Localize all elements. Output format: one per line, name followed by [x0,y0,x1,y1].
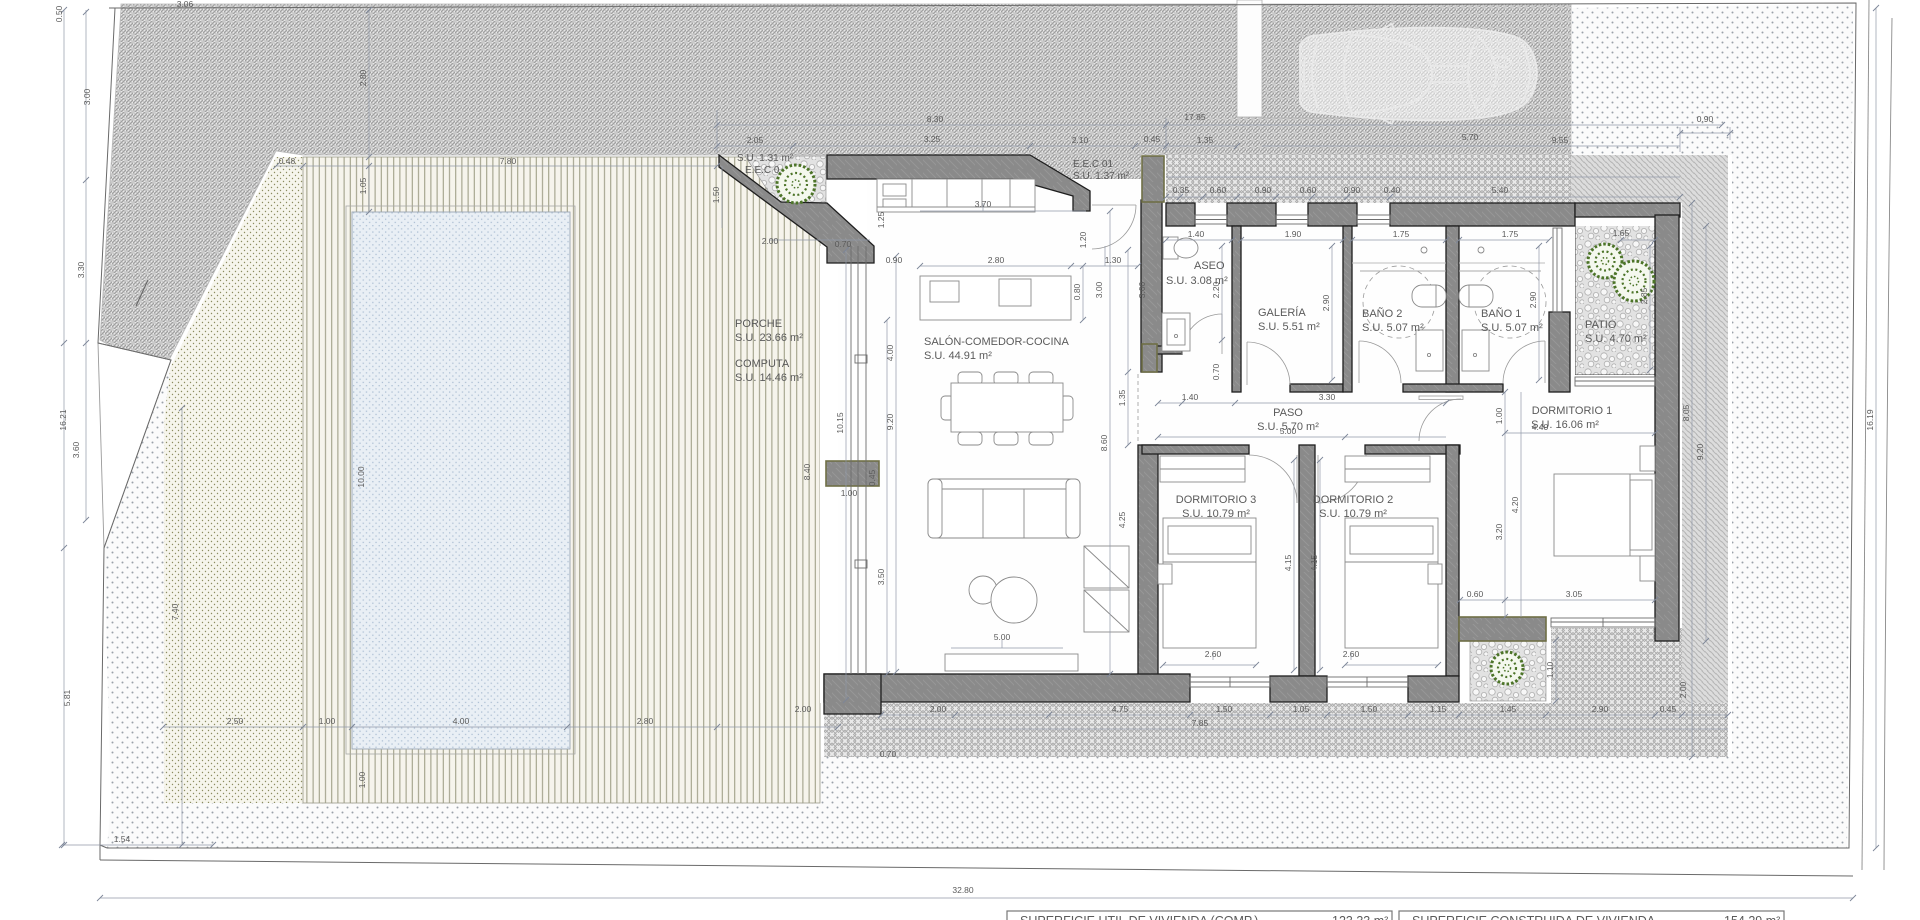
svg-text:0.80: 0.80 [1072,283,1082,300]
svg-text:0.48: 0.48 [279,156,296,166]
svg-text:0.35: 0.35 [1173,185,1190,195]
svg-text:2.50: 2.50 [227,716,244,726]
svg-text:0.45: 0.45 [1144,134,1161,144]
svg-text:0.90: 0.90 [1697,114,1714,124]
svg-text:SUPERFICIE UTIL DE VIVIENDA (C: SUPERFICIE UTIL DE VIVIENDA (COMP.) [1020,914,1258,920]
svg-text:3.50: 3.50 [876,568,886,585]
svg-text:S.U. 23.66 m²: S.U. 23.66 m² [735,332,803,344]
svg-text:10.00: 10.00 [356,466,366,488]
svg-text:17.85: 17.85 [1184,112,1206,122]
svg-text:2.00: 2.00 [795,704,812,714]
svg-text:1.50: 1.50 [1216,704,1233,714]
svg-text:1.15: 1.15 [1430,704,1447,714]
svg-text:0.45: 0.45 [867,469,877,486]
svg-text:1.30: 1.30 [1105,255,1122,265]
svg-text:2.60: 2.60 [1343,649,1360,659]
svg-text:1.20: 1.20 [1078,231,1088,248]
svg-text:3.30: 3.30 [76,261,86,278]
svg-text:1.00: 1.00 [841,488,858,498]
svg-text:3.70: 3.70 [975,199,992,209]
svg-text:E.E.C 01: E.E.C 01 [1073,159,1113,170]
svg-text:8.60: 8.60 [1099,434,1109,451]
svg-text:2.00: 2.00 [1678,681,1688,698]
svg-text:2.90: 2.90 [1321,294,1331,311]
svg-text:PASO: PASO [1273,407,1303,419]
svg-text:1.50: 1.50 [711,186,721,203]
svg-text:COMPUTA: COMPUTA [735,358,790,370]
svg-text:GALERÍA: GALERÍA [1258,306,1306,319]
svg-text:9.20: 9.20 [1695,443,1705,460]
svg-text:3.06: 3.06 [177,0,194,9]
svg-text:7.40: 7.40 [170,603,180,620]
svg-text:1.40: 1.40 [1182,392,1199,402]
svg-text:4.00: 4.00 [885,344,895,361]
svg-text:3.20: 3.20 [1494,523,1504,540]
svg-text:0.70: 0.70 [880,749,897,759]
svg-text:2.80: 2.80 [988,255,1005,265]
svg-text:1.00: 1.00 [319,716,336,726]
svg-text:5.00: 5.00 [994,632,1011,642]
svg-text:S.U. 5.07 m²: S.U. 5.07 m² [1362,322,1424,334]
svg-text:0.40: 0.40 [1384,185,1401,195]
svg-text:4.00: 4.00 [453,716,470,726]
svg-text:154.29 m²: 154.29 m² [1724,914,1780,920]
svg-text:2.05: 2.05 [747,135,764,145]
svg-text:2.80: 2.80 [637,716,654,726]
svg-text:5.40: 5.40 [1492,185,1509,195]
svg-text:S.U. 1.37 m²: S.U. 1.37 m² [1073,171,1130,182]
svg-text:4.75: 4.75 [1112,704,1129,714]
svg-text:4.20: 4.20 [1510,496,1520,513]
svg-text:0.45: 0.45 [1660,704,1677,714]
svg-text:S.U. 14.46 m²: S.U. 14.46 m² [735,372,803,384]
svg-text:S.U. 16.06 m²: S.U. 16.06 m² [1531,419,1599,431]
svg-text:1.75: 1.75 [1393,229,1410,239]
svg-text:3.25: 3.25 [924,134,941,144]
svg-text:4.15: 4.15 [1309,554,1319,571]
svg-text:1.40: 1.40 [1188,229,1205,239]
svg-text:S.U. 1.31 m²: S.U. 1.31 m² [737,153,794,164]
svg-text:9.20: 9.20 [885,413,895,430]
svg-text:2.85: 2.85 [1639,287,1649,304]
svg-text:S.U. 5.07 m²: S.U. 5.07 m² [1481,322,1543,334]
svg-text:3.60: 3.60 [71,441,81,458]
svg-text:3.05: 3.05 [1566,589,1583,599]
svg-text:ASEO: ASEO [1194,260,1225,272]
svg-text:16.21: 16.21 [58,409,68,431]
svg-text:4.15: 4.15 [1283,554,1293,571]
svg-text:S.U. 5.51 m²: S.U. 5.51 m² [1258,321,1320,333]
svg-text:4.25: 4.25 [1117,511,1127,528]
svg-text:10.15: 10.15 [835,412,845,434]
svg-text:0.60: 0.60 [1300,185,1317,195]
svg-text:0.70: 0.70 [835,239,852,249]
svg-text:1.35: 1.35 [1117,389,1127,406]
svg-text:E.E.C 0: E.E.C 0 [745,165,780,176]
svg-text:3.00: 3.00 [82,88,92,105]
svg-text:0.50: 0.50 [54,5,64,22]
svg-text:123.33 m²: 123.33 m² [1332,914,1388,920]
svg-text:1.75: 1.75 [1502,229,1519,239]
svg-text:7.85: 7.85 [1192,718,1209,728]
svg-text:DORMITORIO 2: DORMITORIO 2 [1313,494,1393,506]
svg-text:1.00: 1.00 [1494,407,1504,424]
svg-text:2.60: 2.60 [1205,649,1222,659]
svg-text:1.05: 1.05 [1293,704,1310,714]
svg-text:0.90: 0.90 [1344,185,1361,195]
svg-text:3.00: 3.00 [1094,281,1104,298]
svg-text:S.U. 10.79 m²: S.U. 10.79 m² [1319,508,1387,520]
svg-text:1.65: 1.65 [1613,228,1630,238]
svg-text:8.05: 8.05 [1681,404,1691,421]
svg-text:S.U. 5.70 m²: S.U. 5.70 m² [1257,421,1319,433]
svg-text:1.54: 1.54 [114,834,131,844]
svg-text:5.70: 5.70 [1462,132,1479,142]
svg-text:PATIO: PATIO [1585,319,1617,331]
svg-text:1.10: 1.10 [1545,661,1555,678]
svg-text:9.55: 9.55 [1552,135,1569,145]
svg-text:2.90: 2.90 [1592,704,1609,714]
svg-text:S.U. 4.70 m²: S.U. 4.70 m² [1585,333,1647,345]
svg-text:0.90: 0.90 [886,255,903,265]
svg-text:32.80: 32.80 [952,885,974,895]
svg-text:BAÑO 2: BAÑO 2 [1362,307,1402,320]
svg-text:16.19: 16.19 [1865,409,1875,431]
svg-text:0.60: 0.60 [1467,589,1484,599]
svg-text:1.00: 1.00 [357,771,367,788]
svg-text:2.80: 2.80 [358,69,368,86]
svg-text:2.00: 2.00 [762,236,779,246]
svg-text:1.50: 1.50 [1361,704,1378,714]
svg-text:3.00: 3.00 [1137,281,1147,298]
svg-text:0.60: 0.60 [1210,185,1227,195]
svg-text:2.00: 2.00 [930,704,947,714]
svg-text:PORCHE: PORCHE [735,318,782,330]
svg-text:SUPERFICIE CONSTRUIDA DE VIVIE: SUPERFICIE CONSTRUIDA DE VIVIENDA [1412,914,1656,920]
svg-text:5.81: 5.81 [62,689,72,706]
svg-text:DORMITORIO 1: DORMITORIO 1 [1532,405,1612,417]
svg-text:1.25: 1.25 [876,211,886,228]
svg-text:0.70: 0.70 [1211,363,1221,380]
svg-text:SALÓN-COMEDOR-COCINA: SALÓN-COMEDOR-COCINA [924,335,1070,348]
svg-text:2.10: 2.10 [1072,135,1089,145]
svg-text:3.30: 3.30 [1319,392,1336,402]
svg-text:DORMITORIO 3: DORMITORIO 3 [1176,494,1256,506]
svg-text:S.U. 10.79 m²: S.U. 10.79 m² [1182,508,1250,520]
svg-text:8.30: 8.30 [927,114,944,124]
svg-text:2.90: 2.90 [1528,291,1538,308]
svg-text:1.90: 1.90 [1285,229,1302,239]
svg-text:S.U. 44.91 m²: S.U. 44.91 m² [924,350,992,362]
svg-text:S.U. 3.08 m²: S.U. 3.08 m² [1166,275,1228,287]
svg-text:0.90: 0.90 [1255,185,1272,195]
svg-text:1.45: 1.45 [1500,704,1517,714]
svg-text:1.05: 1.05 [358,177,368,194]
svg-text:8.40: 8.40 [802,463,812,480]
svg-text:BAÑO 1: BAÑO 1 [1481,307,1521,320]
svg-text:1.35: 1.35 [1197,135,1214,145]
svg-text:7.80: 7.80 [500,156,517,166]
